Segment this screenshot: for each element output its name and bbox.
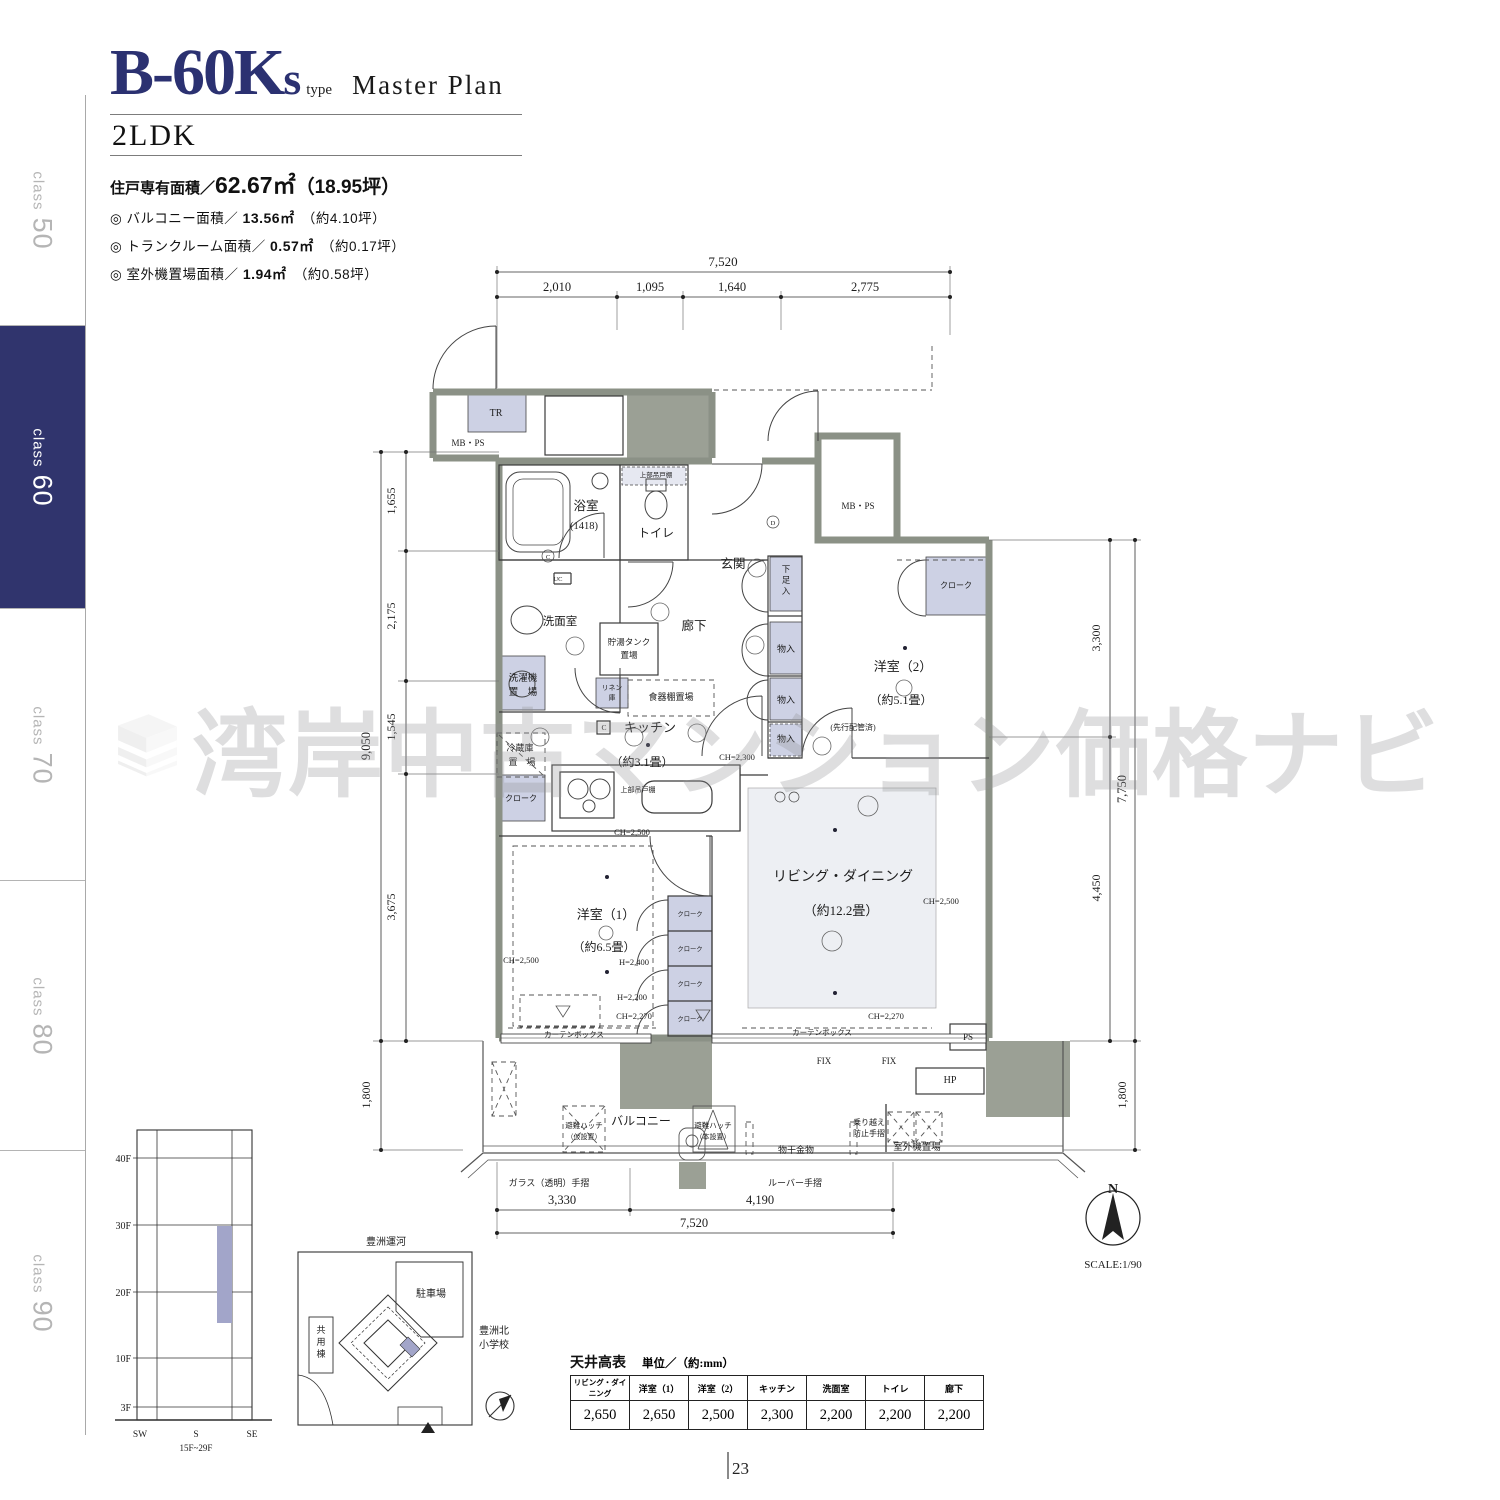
bullet-icon: ◎ <box>110 211 122 226</box>
val-west2: 2,500 <box>689 1401 748 1430</box>
site-school-1: 豊洲北 <box>479 1324 509 1337</box>
label-h2400: H=2,400 <box>619 957 649 967</box>
label-cloak-1: クローク <box>677 910 702 918</box>
label-living-size: （約12.2畳） <box>804 903 879 918</box>
col-toilet: トイレ <box>866 1376 925 1401</box>
label-guard-1: 乗り越え <box>853 1117 885 1127</box>
sitemap-labels: 豊洲運河駐車場共用棟豊洲北小学校 <box>316 1235 509 1359</box>
label-west2-size: （約5.1畳） <box>869 692 932 707</box>
room-kitchen: キッチン <box>624 720 676 735</box>
main-area-label: 住戸専有面積／ <box>110 180 215 197</box>
balcony-area-line: ◎ バルコニー面積／ 13.56㎡ （約4.10坪） <box>110 207 540 228</box>
page-title: B-60Ks type Master Plan <box>110 40 540 106</box>
tab-word: class <box>30 706 47 745</box>
label-tank-1: 貯湯タンク <box>608 637 651 647</box>
area-info: 住戸専有面積／62.67㎡（18.95坪） ◎ バルコニー面積／ 13.56㎡ … <box>110 166 540 284</box>
label-c-box: C <box>601 723 606 732</box>
label-curtain-w1: カーテンボックス <box>544 1030 604 1039</box>
balcony-area-tsubo: （約4.10坪） <box>309 211 387 226</box>
dim-right-2: 4,450 <box>1089 875 1103 902</box>
dim-left-4: 3,675 <box>384 894 398 921</box>
trunk-area-tsubo: （約0.17坪） <box>328 239 406 254</box>
balcony-area-label: バルコニー面積／ <box>127 211 239 226</box>
floor-10f: 10F <box>115 1354 131 1365</box>
dim-top-2: 1,095 <box>636 280 664 294</box>
label-ch2270-ld: CH=2,270 <box>868 1011 904 1021</box>
label-h2200: H=2,200 <box>617 992 647 1002</box>
bullet-icon: ◎ <box>110 239 122 254</box>
tab-num: 60 <box>27 475 58 507</box>
divider <box>110 114 522 115</box>
label-fridge-2: 置 場 <box>508 756 535 767</box>
class-sidebar: class50 class60 class70 class80 class90 <box>0 95 86 1435</box>
table-header-row: リビング・ダイニング 洋室（1） 洋室（2） キッチン 洗面室 トイレ 廊下 <box>571 1376 984 1401</box>
north-compass <box>1086 1191 1140 1245</box>
dir-s: S <box>193 1430 198 1440</box>
trunk-area-line: ◎ トランクルーム面積／ 0.57㎡ （約0.17坪） <box>110 235 540 256</box>
room-bath: 浴室 <box>573 498 598 513</box>
compass-n: N <box>1108 1182 1118 1197</box>
floor-3f: 3F <box>120 1403 131 1414</box>
label-laundry-2: 置 場 <box>509 686 538 698</box>
label-ch2500-w1a: CH=2,500 <box>614 827 650 837</box>
dim-left-1: 1,655 <box>384 488 398 515</box>
label-cupboard: 食器棚置場 <box>648 691 693 702</box>
label-hp: HP <box>944 1075 957 1086</box>
sidebar-tab-class50: class50 <box>0 95 85 325</box>
label-bath-size: (1418) <box>570 521 598 532</box>
sidebar-tab-class80: class80 <box>0 880 85 1151</box>
label-d-circle: D <box>771 520 776 527</box>
label-c-circle: C <box>546 554 550 561</box>
floor-range: 15F~29F <box>180 1443 213 1453</box>
balcony-area-value: 13.56㎡ <box>243 210 295 226</box>
master-plan-label: Master Plan <box>352 70 504 101</box>
val-washroom: 2,200 <box>807 1401 866 1430</box>
divider <box>110 155 522 156</box>
room-west1: 洋室（1） <box>577 907 636 922</box>
label-ch2500-ld: CH=2,500 <box>923 896 959 906</box>
label-guard-2: 防止手摺 <box>853 1128 885 1138</box>
label-cloak-kitchen: クローク <box>505 794 537 803</box>
outdoor-unit-area-value: 1.94㎡ <box>243 266 287 282</box>
label-hatch1-1: 避難ハッチ <box>565 1120 603 1130</box>
main-area-tsubo: （18.95坪） <box>296 177 401 198</box>
type-label: type <box>306 82 332 99</box>
tab-word: class <box>30 171 47 210</box>
val-toilet: 2,200 <box>866 1401 925 1430</box>
label-pipe: (先行配管済) <box>830 722 876 732</box>
label-laundry-1: 洗濯機 <box>509 672 538 684</box>
label-curtain-ld: カーテンボックス <box>792 1028 852 1037</box>
living-floor <box>748 788 936 1008</box>
label-hatch2-1: 避難ハッチ <box>694 1120 732 1130</box>
label-shoe-2: 足 <box>782 575 791 585</box>
site-parking: 駐車場 <box>416 1287 446 1300</box>
label-closet-c: 物入 <box>777 733 795 744</box>
label-louver-rail: ルーバー手摺 <box>768 1177 822 1188</box>
dim-bottom-2: 4,190 <box>746 1193 774 1207</box>
plan-header: B-60Ks type Master Plan 2LDK 住戸専有面積／62.6… <box>110 40 540 284</box>
tab-word: class <box>30 428 47 467</box>
label-closet-a: 物入 <box>777 643 795 654</box>
label-west1-size: （約6.5畳） <box>572 939 635 954</box>
col-hall: 廊下 <box>925 1376 984 1401</box>
dim-top-3: 1,640 <box>718 280 746 294</box>
elevation-diagram <box>115 1130 272 1420</box>
label-fix-1: FIX <box>817 1056 832 1066</box>
bullet-icon: ◎ <box>110 267 122 282</box>
table-value-row: 2,650 2,650 2,500 2,300 2,200 2,200 2,20… <box>571 1401 984 1430</box>
tab-num: 80 <box>27 1023 58 1055</box>
ceiling-height-section: 天井高表単位／（約:mm） リビング・ダイニング 洋室（1） 洋室（2） キッチ… <box>570 1352 984 1430</box>
floor-30f: 30F <box>115 1221 131 1232</box>
site-school-2: 小学校 <box>479 1338 509 1351</box>
ceiling-table-unit: 単位／（約:mm） <box>642 1358 734 1370</box>
dim-left-total: 9,050 <box>359 732 373 760</box>
outdoor-unit-area-label: 室外機置場面積／ <box>127 267 239 282</box>
label-closet-b: 物入 <box>777 694 795 705</box>
label-drying: 物干金物 <box>778 1144 814 1155</box>
main-area-value: 62.67㎡ <box>215 172 296 198</box>
dim-bottom-total: 7,520 <box>680 1216 708 1230</box>
room-west2: 洋室（2） <box>874 659 933 674</box>
dim-bottom-1: 3,330 <box>548 1193 576 1207</box>
room-hall: 廊下 <box>681 618 706 633</box>
room-toilet: トイレ <box>638 526 674 540</box>
label-cloak-west2: クローク <box>940 581 972 590</box>
label-ps: PS <box>963 1032 973 1042</box>
outdoor-unit-area-line: ◎ 室外機置場面積／ 1.94㎡ （約0.58坪） <box>110 263 540 284</box>
tab-num: 70 <box>27 752 58 784</box>
sidebar-tab-class60: class60 <box>0 325 85 609</box>
col-living: リビング・ダイニング <box>571 1376 630 1401</box>
label-cloak-4: クローク <box>677 1015 702 1023</box>
val-hall: 2,200 <box>925 1401 984 1430</box>
dir-sw: SW <box>133 1430 147 1440</box>
label-ch2270-w1: CH=2,270 <box>616 1011 652 1021</box>
main-area-line: 住戸専有面積／62.67㎡（18.95坪） <box>110 166 540 200</box>
room-washroom: 洗面室 <box>543 614 578 628</box>
label-glass-rail: ガラス（透明）手摺 <box>509 1177 590 1188</box>
outdoor-unit-area-tsubo: （約0.58坪） <box>301 267 379 282</box>
sidebar-tab-class70: class70 <box>0 608 85 881</box>
room-tr: TR <box>490 408 503 419</box>
room-balcony: バルコニー <box>611 1114 671 1128</box>
tab-word: class <box>30 1254 47 1293</box>
label-ac-space: 室外機置場 <box>893 1141 941 1153</box>
dim-right-1: 3,300 <box>1089 625 1103 652</box>
label-shoe-1: 下 <box>782 564 791 574</box>
trunk-area-value: 0.57㎡ <box>270 238 314 254</box>
label-mbps-right: MB・PS <box>841 501 874 511</box>
val-living: 2,650 <box>571 1401 630 1430</box>
page-number: 23 <box>732 1459 749 1479</box>
label-shoe-3: 入 <box>782 586 791 596</box>
label-ch2500-w1b: CH=2,500 <box>503 955 539 965</box>
val-west1: 2,650 <box>630 1401 689 1430</box>
unit-type-code: B-60K <box>110 40 283 106</box>
tab-num: 50 <box>27 217 58 249</box>
label-uc: UC <box>553 576 562 583</box>
label-cloak-2: クローク <box>677 945 702 953</box>
col-washroom: 洗面室 <box>807 1376 866 1401</box>
label-tank-2: 置場 <box>620 650 638 660</box>
site-canal: 豊洲運河 <box>366 1235 406 1248</box>
dim-right-total: 7,750 <box>1115 775 1129 803</box>
dir-se: SE <box>246 1430 257 1440</box>
label-hatch1-2: （仮設置） <box>567 1132 602 1141</box>
dim-left-3: 1,545 <box>384 714 398 741</box>
compass-scale: SCALE:1/90 <box>1084 1259 1142 1271</box>
dim-top-1: 2,010 <box>543 280 571 294</box>
label-linen-2: 庫 <box>609 693 616 702</box>
site-common-3: 棟 <box>316 1348 325 1359</box>
ceiling-height-table: リビング・ダイニング 洋室（1） 洋室（2） キッチン 洗面室 トイレ 廊下 2… <box>570 1375 984 1430</box>
unit-type-suffix: s <box>283 56 301 102</box>
dim-left-balcony: 1,800 <box>359 1082 373 1109</box>
site-common-1: 共 <box>316 1325 325 1335</box>
brochure-page: 7,5202,0101,0951,6402,7759,0501,6552,175… <box>0 0 1500 1500</box>
label-fridge-1: 冷蔵庫 <box>506 742 533 753</box>
room-living: リビング・ダイニング <box>773 869 913 885</box>
trunk-area-label: トランクルーム面積／ <box>127 239 266 254</box>
label-fix-2: FIX <box>882 1056 897 1066</box>
dim-right-balcony: 1,800 <box>1115 1082 1129 1109</box>
page-number-bar <box>727 1452 729 1479</box>
col-west1: 洋室（1） <box>630 1376 689 1401</box>
col-kitchen: キッチン <box>748 1376 807 1401</box>
sidebar-tab-class90: class90 <box>0 1150 85 1436</box>
label-toilet-shelf: 上部吊戸棚 <box>640 470 673 479</box>
label-cloak-3: クローク <box>677 980 702 988</box>
floor-20f: 20F <box>115 1288 131 1299</box>
col-west2: 洋室（2） <box>689 1376 748 1401</box>
label-linen-1: リネン <box>602 684 623 692</box>
dim-top-4: 2,775 <box>851 280 879 294</box>
site-common-2: 用 <box>316 1337 325 1347</box>
floor-40f: 40F <box>115 1154 131 1165</box>
label-hatch2-2: （本設置） <box>696 1132 731 1141</box>
label-kitchen-size: （約3.1畳） <box>610 754 673 769</box>
label-hanging-cabinet: 上部吊戸棚 <box>621 785 656 794</box>
page-footer: 23 <box>727 1452 749 1479</box>
ceiling-table-title: 天井高表 <box>570 1356 626 1371</box>
room-entrance: 玄関 <box>720 556 745 571</box>
tab-word: class <box>30 977 47 1016</box>
tab-num: 90 <box>27 1301 58 1333</box>
dim-top-total: 7,520 <box>708 254 737 269</box>
label-mbps-left: MB・PS <box>451 438 484 448</box>
val-kitchen: 2,300 <box>748 1401 807 1430</box>
label-ch2300: CH=2,300 <box>719 752 755 762</box>
layout-type: 2LDK <box>112 119 540 153</box>
dim-left-2: 2,175 <box>384 603 398 630</box>
